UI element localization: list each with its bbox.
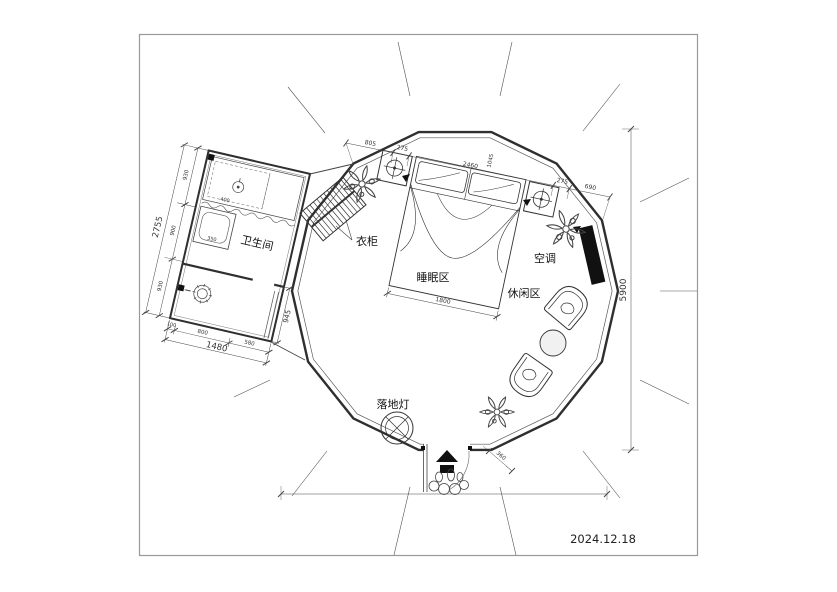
bathroom-label: 卫生间 [240,232,275,253]
dim-bath-900: 900 [170,224,178,236]
vanity-counter [203,157,304,221]
annex-connector-bottom [271,342,305,360]
date-stamp: 2024.12.18 [570,532,636,546]
wall-arrow-marker-icon [402,174,410,182]
dim-top-2460: 2460 [462,161,479,171]
entrance [421,442,472,495]
door-jamb-left [421,446,425,450]
overall-height-dim: 5900 [619,126,639,453]
dim-top-690: 690 [584,183,597,192]
shower-curtain-squiggle [201,201,295,226]
floor-plan-canvas: 400 350 卫生间 [0,0,837,592]
dim-5900: 5900 [619,278,629,301]
bathroom-annex: 400 350 卫生间 [128,139,324,369]
wardrobe-label: 衣柜 [356,234,378,248]
dim-top-1045: 1045 [487,153,496,168]
drawing-border-frame [140,35,698,556]
floor-drain-icon [183,280,215,306]
dim-top-275b: 275 [556,177,569,186]
armchair-icon [543,281,593,331]
air-conditioner-unit [573,225,605,285]
nightstand-right-icon [523,181,559,217]
floor-plan-drawing: 400 350 卫生间 [0,0,837,592]
door-jamb-right [468,446,472,450]
air-conditioner-label: 空调 [534,251,556,265]
sleeping-area-label: 睡眠区 [417,271,450,284]
plant-icon [475,389,520,435]
wall-arrow-marker-icon [523,199,531,206]
bottom-extent-line [278,486,610,500]
entry-dim: 360 [483,446,515,474]
floor-lamp-label: 落地灯 [377,398,410,411]
dim-360: 360 [495,451,507,463]
dim-bed-1800: 1800 [435,296,452,306]
dim-shower-width: 350 [206,235,217,243]
dim-vanity-width: 400 [220,196,231,204]
bed-group: 1800 [353,149,559,327]
dim-bath-930b: 930 [157,280,165,292]
dim-bath-945: 945 [282,309,293,324]
dim-bath-930a: 930 [182,169,190,181]
dim-top-805: 805 [364,139,377,148]
round-table-icon [540,330,566,356]
dim-top-275a: 275 [396,144,409,153]
armchair-icon [504,353,553,403]
leisure-area-label: 休闲区 [508,286,541,300]
top-dim-chain: 805 275 2460 1045 275 690 [344,139,613,219]
duvet-arc [397,184,520,270]
floor-lamp-icon [381,412,413,444]
